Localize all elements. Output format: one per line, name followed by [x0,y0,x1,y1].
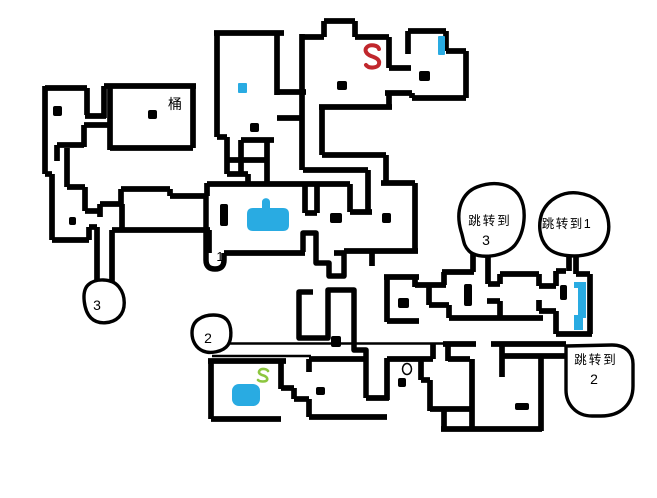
svg-text:2: 2 [590,371,598,387]
svg-text:3: 3 [93,297,101,313]
svg-text:桶: 桶 [168,96,182,112]
svg-text:跳转到: 跳转到 [574,352,618,367]
svg-text:1: 1 [216,249,223,264]
svg-text:2: 2 [204,330,212,346]
svg-text:跳转到1: 跳转到1 [542,216,592,231]
svg-text:3: 3 [482,232,490,248]
svg-text:跳转到: 跳转到 [468,213,512,228]
